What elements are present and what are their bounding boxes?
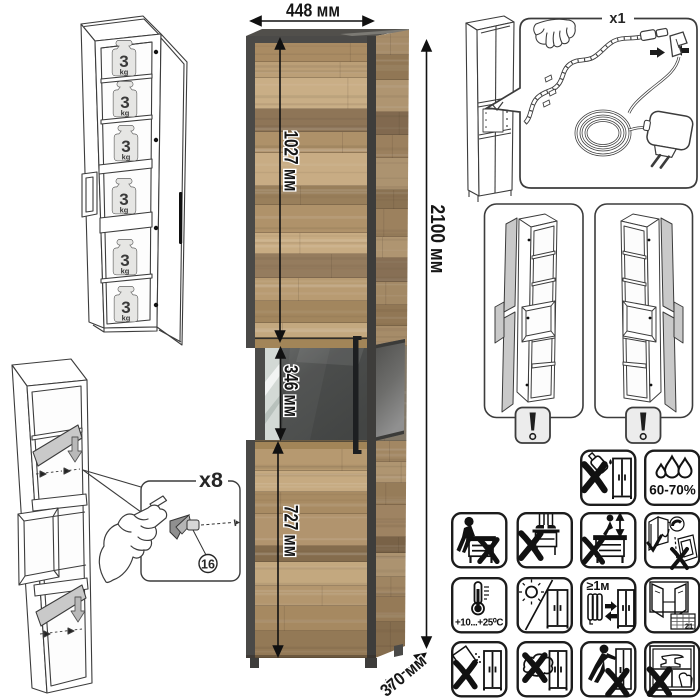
svg-text:21: 21: [685, 622, 693, 631]
svg-text:kg: kg: [121, 108, 130, 117]
svg-text:16: 16: [201, 558, 215, 572]
svg-text:kg: kg: [120, 205, 129, 214]
svg-text:1027 мм: 1027 мм: [280, 131, 302, 192]
svg-text:≥1м: ≥1м: [586, 579, 609, 593]
svg-text:448 мм: 448 мм: [286, 1, 340, 21]
svg-text:+10...+25⁰C: +10...+25⁰C: [455, 618, 503, 629]
svg-text:kg: kg: [122, 313, 131, 322]
svg-text:60-70%: 60-70%: [649, 483, 696, 498]
svg-text:2100 мм: 2100 мм: [426, 205, 448, 274]
svg-text:727 мм: 727 мм: [280, 505, 302, 557]
svg-text:x8: x8: [199, 468, 223, 492]
svg-text:346 мм: 346 мм: [280, 365, 302, 417]
svg-text:kg: kg: [120, 67, 129, 76]
svg-text:kg: kg: [122, 152, 131, 161]
svg-text:kg: kg: [121, 266, 130, 275]
svg-text:x1: x1: [609, 11, 625, 27]
